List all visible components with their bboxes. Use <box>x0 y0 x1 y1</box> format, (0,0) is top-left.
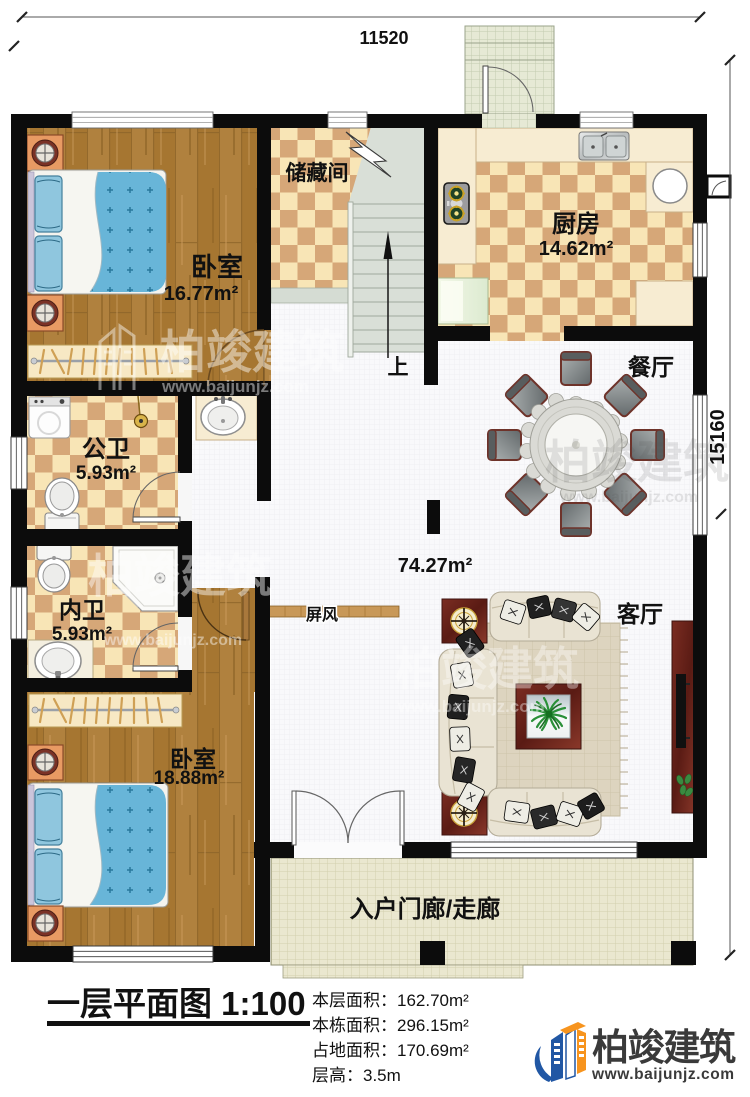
svg-text:柏竣建筑: 柏竣建筑 <box>395 643 579 695</box>
svg-text:储藏间: 储藏间 <box>286 161 349 185</box>
svg-text:柏竣建筑: 柏竣建筑 <box>88 550 272 602</box>
svg-text:柏竣建筑: 柏竣建筑 <box>592 1026 736 1068</box>
svg-text:www.baijunjz.com: www.baijunjz.com <box>397 697 545 716</box>
svg-text:厨房: 厨房 <box>552 210 600 238</box>
svg-text:柏竣建筑: 柏竣建筑 <box>160 326 344 378</box>
svg-text:5.93m²: 5.93m² <box>76 463 136 484</box>
svg-text:15160: 15160 <box>707 409 729 465</box>
svg-text:18.88m²: 18.88m² <box>154 768 225 789</box>
svg-text:客厅: 客厅 <box>617 601 663 627</box>
svg-text:层高：3.5m: 层高：3.5m <box>312 1066 401 1085</box>
svg-text:上: 上 <box>388 356 409 379</box>
svg-text:www.baijunjz.com: www.baijunjz.com <box>559 489 698 506</box>
svg-text:14.62m²: 14.62m² <box>539 238 614 260</box>
svg-text:餐厅: 餐厅 <box>628 354 674 380</box>
svg-text:www.baijunjz.com: www.baijunjz.com <box>591 1066 734 1083</box>
svg-text:www.baijunjz.com: www.baijunjz.com <box>103 632 242 649</box>
svg-text:入户门廊/走廊: 入户门廊/走廊 <box>350 895 501 923</box>
svg-text:74.27m²: 74.27m² <box>398 555 473 577</box>
svg-text:一层平面图 1:100: 一层平面图 1:100 <box>47 985 306 1022</box>
svg-text:卧室: 卧室 <box>191 252 243 282</box>
svg-text:本栋面积：296.15m²: 本栋面积：296.15m² <box>312 1016 469 1035</box>
svg-text:占地面积：170.69m²: 占地面积：170.69m² <box>312 1041 469 1060</box>
svg-text:公卫: 公卫 <box>82 436 130 463</box>
svg-text:本层面积：162.70m²: 本层面积：162.70m² <box>312 991 469 1010</box>
svg-text:11520: 11520 <box>359 28 408 48</box>
svg-text:16.77m²: 16.77m² <box>164 283 239 305</box>
svg-text:www.baijunjz.com: www.baijunjz.com <box>161 377 309 396</box>
svg-text:屏风: 屏风 <box>306 606 338 624</box>
svg-text:柏竣建筑: 柏竣建筑 <box>545 436 729 488</box>
